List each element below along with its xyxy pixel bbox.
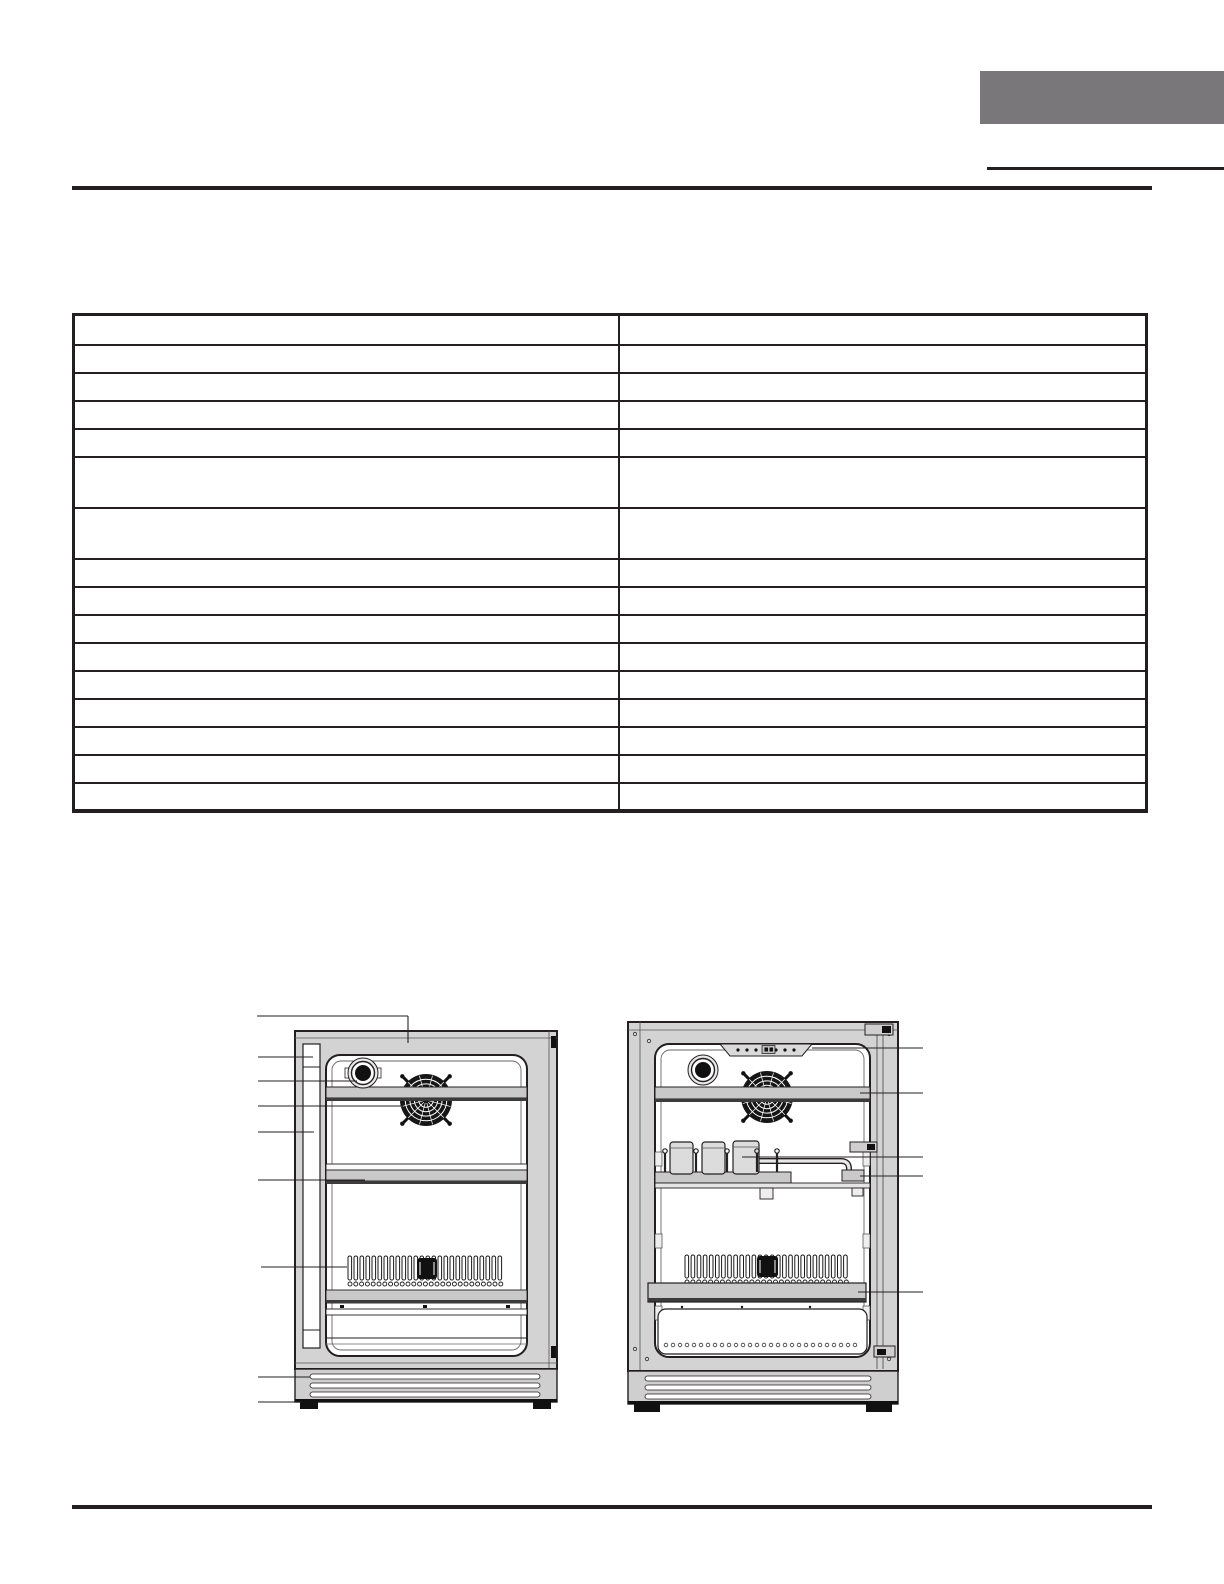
- table-cell: [75, 756, 618, 782]
- door-handle: [303, 1044, 320, 1348]
- diagram-interior-view: [620, 1012, 930, 1414]
- table-row: [75, 782, 1145, 809]
- table-row: [75, 558, 1145, 586]
- table-cell: [618, 560, 1145, 586]
- table-cell: [618, 728, 1145, 754]
- table-row: [75, 614, 1145, 642]
- table-cell: [618, 588, 1145, 614]
- table-cell: [618, 509, 1145, 558]
- table-cell: [618, 430, 1145, 456]
- table-row: [75, 698, 1145, 726]
- table-cell: [75, 700, 618, 726]
- glass-shelf: [326, 1164, 527, 1184]
- can: [702, 1142, 725, 1174]
- table-cell: [75, 316, 618, 344]
- table-row: [75, 670, 1145, 698]
- top-hinge-pin: [551, 1036, 556, 1048]
- table-cell: [75, 588, 618, 614]
- top-shelf: [655, 1087, 870, 1102]
- table-row: [75, 372, 1145, 400]
- panel-button-icon: [792, 1048, 795, 1051]
- table-cell: [75, 728, 618, 754]
- table-cell: [618, 458, 1145, 507]
- table-cell: [75, 560, 618, 586]
- manual-page: [0, 0, 1224, 1584]
- can: [670, 1142, 693, 1174]
- table-cell: [618, 644, 1145, 670]
- table-cell: [618, 700, 1145, 726]
- table-cell: [618, 784, 1145, 809]
- header-rule-main: [72, 186, 1152, 190]
- table-row: [75, 754, 1145, 782]
- leveling-foot: [533, 1402, 551, 1409]
- diagram-front-view: [255, 1008, 565, 1412]
- top-hinge: [865, 1024, 893, 1035]
- table-cell: [75, 430, 618, 456]
- table-cell: [75, 784, 618, 809]
- table-cell: [75, 672, 618, 698]
- table-row: [75, 507, 1145, 558]
- table-row: [75, 344, 1145, 372]
- leveling-foot: [866, 1404, 892, 1412]
- table-cell: [618, 402, 1145, 428]
- leveling-foot: [300, 1402, 318, 1409]
- top-shelf: [326, 1087, 527, 1101]
- table-row: [75, 586, 1145, 614]
- table-cell: [618, 616, 1145, 642]
- table-row: [75, 316, 1145, 344]
- table-row: [75, 456, 1145, 507]
- table-row: [75, 400, 1145, 428]
- table-cell: [618, 672, 1145, 698]
- footer-rule: [72, 1505, 1152, 1509]
- table-cell: [618, 346, 1145, 372]
- table-row: [75, 726, 1145, 754]
- table-cell: [75, 374, 618, 400]
- spec-table: [72, 313, 1148, 813]
- table-cell: [75, 616, 618, 642]
- panel-button-icon: [736, 1048, 739, 1051]
- table-cell: [75, 402, 618, 428]
- table-cell: [75, 458, 618, 507]
- table-row: [75, 642, 1145, 670]
- table-cell: [75, 346, 618, 372]
- panel-button-icon: [754, 1048, 757, 1051]
- header-rule-short: [987, 167, 1224, 170]
- section-tab-block: [980, 71, 1224, 124]
- kickplate: [295, 1369, 557, 1402]
- interior-light: [688, 1055, 718, 1085]
- table-row: [75, 428, 1145, 456]
- leveling-foot: [634, 1404, 660, 1412]
- bottom-hinge-pin: [551, 1346, 556, 1358]
- lower-shelf: [326, 1290, 527, 1315]
- kickplate: [628, 1371, 898, 1404]
- middle-hinge: [850, 1142, 877, 1152]
- panel-button-icon: [745, 1048, 748, 1051]
- table-cell: [618, 316, 1145, 344]
- bottom-hinge: [874, 1346, 895, 1357]
- control-panel: [720, 1044, 812, 1056]
- panel-button-icon: [783, 1048, 786, 1051]
- crisper-area: [658, 1309, 867, 1354]
- table-cell: [618, 374, 1145, 400]
- table-cell: [618, 756, 1145, 782]
- temperature-display: [762, 1046, 775, 1054]
- table-cell: [75, 644, 618, 670]
- table-cell: [75, 509, 618, 558]
